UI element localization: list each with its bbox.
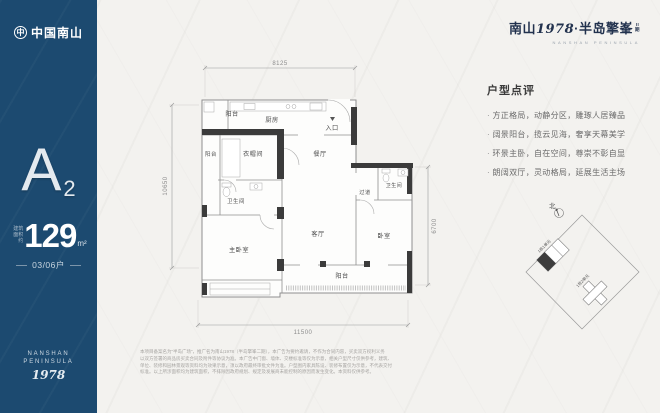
kitchen-sink bbox=[244, 104, 255, 110]
project-title-brand: 南山 bbox=[509, 21, 536, 36]
disclaimer: 本项目备案名为“半岛广场”，推广名为南山1978（半岛擎峯二期），本广告为要约邀… bbox=[140, 349, 408, 376]
room-label-entrance: 入口 bbox=[325, 125, 338, 132]
brand-logo-text: 中国南山 bbox=[31, 24, 83, 41]
project-header: 南山1978·半岛擎峯II期 NANSHAN PENINSULA bbox=[509, 18, 640, 45]
floor-plan-drawing: 8125 10650 6700 11500 bbox=[160, 55, 460, 345]
dimension-top: 8125 bbox=[272, 61, 288, 67]
brand-wordmark: NANSHAN PENINSULA bbox=[0, 350, 97, 366]
unit-area: 建筑面积约 129 m² bbox=[0, 221, 97, 251]
floorplan-flyer: 中 中国南山 A2 建筑面积约 129 m² 03/06户 NANSHAN PE… bbox=[0, 0, 660, 413]
unit-letter: A bbox=[21, 136, 62, 203]
unit-review-item: 朗阔双厅，灵动格局，延展生活主场 bbox=[487, 163, 647, 182]
dimension-right: 6700 bbox=[432, 218, 438, 234]
stove-burner bbox=[292, 105, 296, 109]
room-label-dining: 餐厅 bbox=[313, 150, 326, 158]
unit-review-title: 户型点评 bbox=[487, 82, 647, 98]
room-label-living: 客厅 bbox=[311, 230, 324, 238]
divider-dash bbox=[70, 265, 81, 266]
unit-review-item: 环景主卧，自在空间，尊崇不彰自显 bbox=[487, 144, 647, 163]
brand-logo: 中 中国南山 bbox=[0, 24, 97, 41]
unit-review-item: 方正格局，动静分区，雕琢人居臻品 bbox=[487, 106, 647, 125]
site-plan-drawing: 北 1栋1单元 1栋2单元 bbox=[505, 193, 655, 341]
room-label-kitchen: 厨房 bbox=[265, 116, 278, 124]
site-boundary bbox=[526, 215, 639, 329]
project-title: 南山1978·半岛擎峯II期 bbox=[509, 18, 640, 37]
disclaimer-line: 本项目备案名为“半岛广场”，推广名为南山1978（半岛擎峯二期），本广告为要约邀… bbox=[140, 349, 408, 356]
toilet bbox=[383, 174, 389, 182]
building-2-footprint: 1栋2单元 bbox=[571, 269, 613, 311]
divider-dash bbox=[16, 265, 27, 266]
room-label-bedroom: 卧室 bbox=[377, 232, 390, 240]
project-phase-line2: 期 bbox=[635, 27, 640, 32]
site-plan: 北 1栋1单元 1栋2单元 bbox=[505, 193, 655, 341]
unit-area-value: 129 bbox=[24, 221, 76, 251]
wardrobe bbox=[222, 139, 240, 177]
sidebar: 中 中国南山 A2 建筑面积约 129 m² 03/06户 NANSHAN PE… bbox=[0, 0, 97, 413]
disclaimer-line: 以双方签署的商品房买卖合同及附件等协议为准。本广告中门窗、墙体、交楼标准等仅为示… bbox=[140, 356, 408, 363]
room-label-bath-left: 卫生间 bbox=[227, 197, 245, 205]
unit-review-item: 阔景阳台，揽云见海，奢享天幕美学 bbox=[487, 125, 647, 144]
brand-wordmark-line2: PENINSULA bbox=[0, 358, 97, 366]
room-label-balcony-left: 阳台 bbox=[205, 150, 217, 158]
unit-code: A2 bbox=[0, 140, 97, 202]
unit-area-prefix: 建筑面积约 bbox=[10, 226, 23, 244]
stove-burner bbox=[286, 105, 290, 109]
brand-year: 1978 bbox=[0, 368, 97, 382]
compass-north-label: 北 bbox=[549, 202, 556, 210]
unit-number: 2 bbox=[63, 176, 75, 201]
dimension-bottom: 11500 bbox=[294, 330, 313, 336]
room-label-balcony-top: 阳台 bbox=[225, 110, 238, 118]
disclaimer-line: 标准。以上所涉面积均为建筑面积，不排除因政府规划、规定及发展商未能控制的原因而发… bbox=[140, 369, 408, 376]
brand-logo-icon: 中 bbox=[14, 26, 27, 39]
building-1-footprint: 1栋1单元 bbox=[531, 233, 569, 271]
room-label-corridor: 过道 bbox=[359, 188, 370, 196]
room-label-balcony-bottom: 阳台 bbox=[335, 272, 348, 280]
unit-area-unit: m² bbox=[77, 239, 86, 248]
room-label-master-bedroom: 主卧室 bbox=[229, 246, 249, 254]
toilet bbox=[223, 188, 230, 197]
disclaimer-line: 单位、装修和园林景观等资料均为效果示意，须以政府最终审批文件为准。户型图内家具陈… bbox=[140, 363, 408, 370]
unit-review: 户型点评 方正格局，动静分区，雕琢人居臻品 阔景阳台，揽云见海，奢享天幕美学 环… bbox=[487, 82, 647, 182]
project-title-year: 1978 bbox=[536, 22, 574, 37]
washbasin-bowl bbox=[401, 171, 405, 175]
toilet-tank bbox=[382, 169, 390, 173]
room-label-cloakroom: 衣帽间 bbox=[243, 150, 263, 158]
compass: 北 bbox=[549, 202, 564, 218]
project-subtitle: NANSHAN PENINSULA bbox=[509, 40, 640, 45]
washer bbox=[204, 102, 214, 112]
household-label: 03/06户 bbox=[32, 259, 65, 271]
floor-plan: 8125 10650 6700 11500 bbox=[160, 55, 460, 345]
brand-wordmark-line1: NANSHAN bbox=[0, 350, 97, 358]
dimension-left: 10650 bbox=[163, 176, 169, 195]
household-info: 03/06户 bbox=[0, 259, 97, 271]
room-label-bath-right: 卫生间 bbox=[386, 182, 403, 189]
toilet-tank bbox=[222, 183, 231, 187]
washbasin-bowl bbox=[254, 185, 258, 189]
project-phase: II期 bbox=[635, 22, 640, 32]
fridge bbox=[310, 103, 322, 110]
project-title-name: ·半岛擎峯 bbox=[574, 21, 633, 36]
